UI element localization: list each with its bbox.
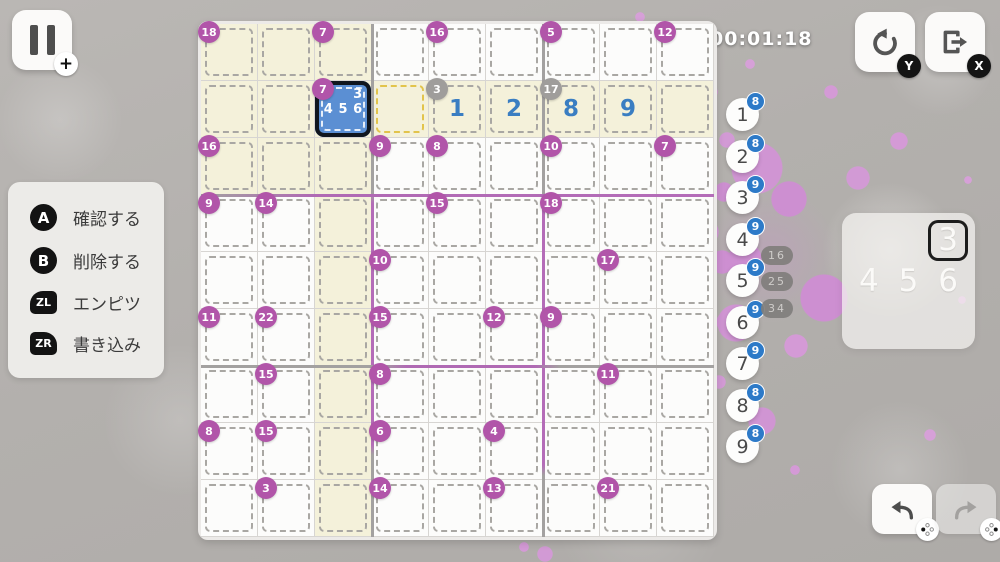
popup-digit-7[interactable] (849, 301, 889, 342)
a-button-icon: A (30, 204, 57, 231)
zr-button-icon: ZR (30, 332, 57, 355)
remaining-count-badge: 9 (746, 341, 765, 360)
number-button-2[interactable]: 28 (726, 140, 759, 173)
legend-row-delete: B 削除する (30, 247, 164, 274)
grid-cell-r3c6[interactable] (486, 138, 543, 195)
cage-sum-badge: 9 (540, 306, 562, 328)
grid-cell-r2c8[interactable]: 9 (600, 81, 657, 138)
cage-sum-badge: 10 (369, 249, 391, 271)
grid-cell-r9c5[interactable] (429, 480, 486, 537)
cage-dash-outline (661, 199, 709, 247)
cage-sum-badge: 3 (255, 477, 277, 499)
killer-grid: 3456128918716512731716981079141518101711… (201, 24, 714, 537)
cage-sum-badge: 9 (369, 135, 391, 157)
grid-cell-r2c2[interactable] (258, 81, 315, 138)
grid-cell-r2c6[interactable]: 2 (486, 81, 543, 138)
cage-dash-outline (319, 256, 367, 304)
cage-dash-outline (547, 484, 595, 532)
cage-sum-badge: 14 (255, 192, 277, 214)
popup-digit-2[interactable] (889, 220, 929, 261)
cage-dash-outline (604, 142, 652, 190)
cage-dash-outline (547, 370, 595, 418)
y-button-badge: Y (897, 54, 921, 78)
number-button-9[interactable]: 98 (726, 430, 759, 463)
cage-dash-outline (319, 484, 367, 532)
pause-icon (30, 25, 55, 55)
cage-sum-badge: 8 (198, 420, 220, 442)
grid-cell-r6c3[interactable] (315, 309, 372, 366)
cage-dash-outline (205, 85, 253, 133)
cage-dash-outline (205, 256, 253, 304)
cage-dash-outline (490, 199, 538, 247)
cage-sum-badge: 13 (483, 477, 505, 499)
cage-sum-badge: 17 (597, 249, 619, 271)
cage-sum-badge: 15 (426, 192, 448, 214)
grid-cell-r8c3[interactable] (315, 423, 372, 480)
number-button-6[interactable]: 69 (726, 306, 759, 339)
grid-cell-r6c8[interactable] (600, 309, 657, 366)
cage-dash-outline (661, 313, 709, 361)
popup-digit-8[interactable] (889, 301, 929, 342)
remaining-count-badge: 9 (746, 175, 765, 194)
grid-cell-r8c8[interactable] (600, 423, 657, 480)
redo-button[interactable] (936, 484, 996, 534)
cage-sum-badge: 15 (255, 363, 277, 385)
number-button-5[interactable]: 59 (726, 264, 759, 297)
grid-cell-r7c3[interactable] (315, 366, 372, 423)
cage-sum-badge: 16 (426, 21, 448, 43)
exit-icon (938, 25, 972, 59)
number-button-3[interactable]: 39 (726, 181, 759, 214)
cage-dash-outline (319, 199, 367, 247)
cage-sum-badge: 7 (654, 135, 676, 157)
grid-cell-r4c4[interactable] (372, 195, 429, 252)
cage-sum-badge: 16 (198, 135, 220, 157)
legend-row-pencil: ZL エンピツ (30, 290, 164, 315)
cage-sum-badge: 4 (483, 420, 505, 442)
b-button-icon: B (30, 247, 57, 274)
cage-dash-outline (661, 256, 709, 304)
grid-cell-r7c6[interactable] (486, 366, 543, 423)
grid-cell-r2c1[interactable] (201, 81, 258, 138)
dpad-right-badge (980, 518, 1000, 541)
cage-dash-outline (262, 142, 310, 190)
cage-sum-badge: 18 (198, 21, 220, 43)
grid-cell-r1c6[interactable] (486, 24, 543, 81)
cage-dash-outline (376, 199, 424, 247)
grid-cell-r6c9[interactable] (657, 309, 714, 366)
cage-sum-badge: 22 (255, 306, 277, 328)
cage-dash-outline (661, 484, 709, 532)
undo-arrow-icon (887, 494, 917, 524)
cage-sum-badge: 21 (597, 477, 619, 499)
cage-sum-badge: 14 (369, 477, 391, 499)
grid-cell-r7c7[interactable] (543, 366, 600, 423)
cage-dash-outline (262, 28, 310, 76)
cell-value: 2 (486, 81, 542, 137)
grid-cell-r3c3[interactable] (315, 138, 372, 195)
grid-cell-r9c1[interactable] (201, 480, 258, 537)
cage-dash-outline (376, 85, 424, 133)
cage-sum-badge: 12 (483, 306, 505, 328)
number-button-7[interactable]: 79 (726, 347, 759, 380)
combo-hint-34: 34 (761, 299, 793, 318)
popup-digit-6[interactable]: 6 (928, 261, 968, 302)
grid-cell-r5c6[interactable] (486, 252, 543, 309)
popup-digit-1[interactable] (849, 220, 889, 261)
cage-sum-badge: 7 (312, 78, 334, 100)
popup-digit-4[interactable]: 4 (849, 261, 889, 302)
legend-row-write: ZR 書き込み (30, 331, 164, 356)
grid-cell-r7c9[interactable] (657, 366, 714, 423)
combo-hint-25: 25 (761, 272, 793, 291)
grid-cell-r5c2[interactable] (258, 252, 315, 309)
cage-dash-outline (319, 313, 367, 361)
cage-dash-outline (319, 370, 367, 418)
cage-dash-outline (433, 313, 481, 361)
grid-cell-r7c5[interactable] (429, 366, 486, 423)
x-button-badge: X (967, 54, 991, 78)
cage-sum-badge: 7 (312, 21, 334, 43)
remaining-count-badge: 8 (746, 92, 765, 111)
cage-dash-outline (661, 85, 709, 133)
cage-dash-outline (376, 28, 424, 76)
grid-cell-r9c7[interactable] (543, 480, 600, 537)
legend-label: エンピツ (73, 290, 141, 315)
cage-dash-outline (604, 313, 652, 361)
grid-cell-r1c2[interactable] (258, 24, 315, 81)
grid-cell-r3c2[interactable] (258, 138, 315, 195)
cage-dash-outline (547, 256, 595, 304)
remaining-count-badge: 8 (746, 134, 765, 153)
cage-dash-outline (433, 484, 481, 532)
cage-dash-outline (319, 142, 367, 190)
legend-label: 確認する (73, 205, 141, 230)
timer: 00:01:18 (710, 28, 814, 50)
combo-hint-16: 16 (761, 246, 793, 265)
cage-dash-outline (433, 427, 481, 475)
pencil-entry-popup: 3456 (842, 213, 975, 349)
cage-dash-outline (433, 256, 481, 304)
grid-cell-r6c5[interactable] (429, 309, 486, 366)
grid-cell-r8c7[interactable] (543, 423, 600, 480)
cage-dash-outline (604, 199, 652, 247)
legend-row-confirm: A 確認する (30, 204, 164, 231)
popup-digit-3[interactable]: 3 (928, 220, 968, 261)
cage-sum-badge: 10 (540, 135, 562, 157)
cage-sum-badge: 9 (198, 192, 220, 214)
popup-digit-9[interactable] (928, 301, 968, 342)
legend-label: 削除する (73, 248, 141, 273)
undo-button[interactable] (872, 484, 932, 534)
grid-cell-r1c8[interactable] (600, 24, 657, 81)
grid-cell-r2c9[interactable] (657, 81, 714, 138)
grid-cell-r8c5[interactable] (429, 423, 486, 480)
grid-cell-r5c7[interactable] (543, 252, 600, 309)
pause-button[interactable]: + (12, 10, 72, 70)
cell-value: 9 (600, 81, 656, 137)
grid-cell-r5c5[interactable] (429, 252, 486, 309)
number-button-1[interactable]: 18 (726, 98, 759, 131)
cage-sum-badge: 12 (654, 21, 676, 43)
exit-button[interactable]: X (925, 12, 985, 72)
grid-cell-r4c9[interactable] (657, 195, 714, 252)
cage-dash-outline (661, 370, 709, 418)
cage-sum-badge: 11 (198, 306, 220, 328)
remaining-count-badge: 8 (746, 383, 765, 402)
controls-legend-panel: A 確認する B 削除する ZL エンピツ ZR 書き込み (8, 182, 164, 378)
cage-dash-outline (547, 427, 595, 475)
cage-sum-badge: 8 (369, 363, 391, 385)
killer-sudoku-board: 3456128918716512731716981079141518101711… (198, 21, 717, 540)
cage-sum-badge: 8 (426, 135, 448, 157)
grid-cell-r5c3[interactable] (315, 252, 372, 309)
grid-cell-r8c9[interactable] (657, 423, 714, 480)
cage-sum-badge: 6 (369, 420, 391, 442)
cage-sum-badge: 18 (540, 192, 562, 214)
cage-dash-outline (490, 28, 538, 76)
cage-dash-outline (490, 256, 538, 304)
redo-arrow-icon (951, 494, 981, 524)
plus-button-badge: + (54, 52, 78, 76)
cage-dash-outline (262, 85, 310, 133)
cage-sum-badge: 15 (369, 306, 391, 328)
cage-dash-outline (604, 427, 652, 475)
cage-sum-badge: 3 (426, 78, 448, 100)
remaining-count-badge: 9 (746, 217, 765, 236)
remaining-count-badge: 8 (746, 424, 765, 443)
grid-cell-r7c1[interactable] (201, 366, 258, 423)
restart-arrow-icon (868, 25, 902, 59)
cage-dash-outline (661, 427, 709, 475)
cage-sum-badge: 17 (540, 78, 562, 100)
cage-dash-outline (433, 370, 481, 418)
number-button-8[interactable]: 88 (726, 389, 759, 422)
grid-cell-r4c6[interactable] (486, 195, 543, 252)
cage-dash-outline (490, 370, 538, 418)
zl-button-icon: ZL (30, 291, 57, 314)
grid-cell-r2c4[interactable] (372, 81, 429, 138)
grid-cell-r5c9[interactable] (657, 252, 714, 309)
cage-dash-outline (604, 28, 652, 76)
cage-dash-outline (262, 256, 310, 304)
grid-cell-r1c4[interactable] (372, 24, 429, 81)
cage-sum-badge: 5 (540, 21, 562, 43)
cage-dash-outline (205, 484, 253, 532)
game-screen: + 00:01:18 Y X A 確認する B 削除する ZL エンピツ (0, 0, 1000, 562)
grid-cell-r4c8[interactable] (600, 195, 657, 252)
grid-cell-r4c3[interactable] (315, 195, 372, 252)
cage-dash-outline (319, 427, 367, 475)
cage-sum-badge: 11 (597, 363, 619, 385)
restart-button[interactable]: Y (855, 12, 915, 72)
popup-digit-5[interactable]: 5 (889, 261, 929, 302)
legend-label: 書き込み (73, 331, 141, 356)
grid-cell-r9c9[interactable] (657, 480, 714, 537)
cage-dash-outline (490, 142, 538, 190)
cage-sum-badge: 15 (255, 420, 277, 442)
grid-cell-r5c1[interactable] (201, 252, 258, 309)
grid-cell-r9c3[interactable] (315, 480, 372, 537)
cage-dash-outline (205, 370, 253, 418)
number-button-4[interactable]: 49 (726, 223, 759, 256)
grid-cell-r3c8[interactable] (600, 138, 657, 195)
